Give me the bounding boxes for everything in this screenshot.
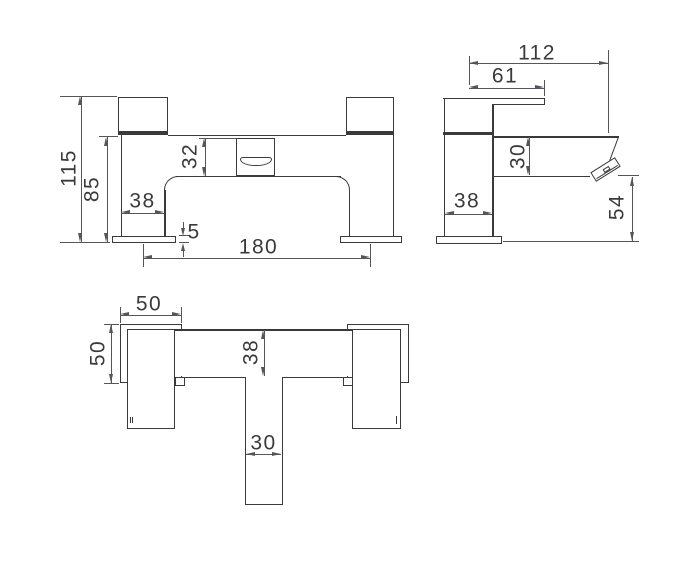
plan-left-handle: [127, 329, 176, 429]
plan-left-fixing-mark-2: [132, 417, 133, 423]
technical-drawing-canvas: 115 85 32 38 5 180: [0, 0, 675, 570]
plan-view: 50 50 38 30: [0, 0, 675, 570]
dim-line-30-plan: [246, 454, 281, 455]
plan-right-handle: [352, 329, 401, 429]
dim-label-30-plan: 30: [250, 432, 276, 453]
plan-right-shroud-tab: [343, 377, 353, 387]
ext-line-50h-right: [181, 307, 182, 323]
dim-label-38-plan: 38: [241, 339, 262, 365]
dim-line-50-horizontal: [120, 315, 181, 316]
dim-line-50-vertical: [111, 324, 112, 384]
dim-label-50-vertical: 50: [87, 340, 108, 366]
plan-right-fixing-mark: [396, 416, 397, 424]
dim-label-50-horizontal: 50: [136, 293, 162, 314]
ext-line-50v-bottom: [104, 383, 120, 384]
plan-body-bottom-edge-right: [282, 377, 353, 378]
plan-left-shroud-tab: [175, 377, 185, 387]
dim-line-38-plan: [264, 330, 265, 376]
plan-left-fixing-mark-1: [130, 417, 131, 423]
plan-body-bottom-edge-left: [175, 377, 246, 378]
